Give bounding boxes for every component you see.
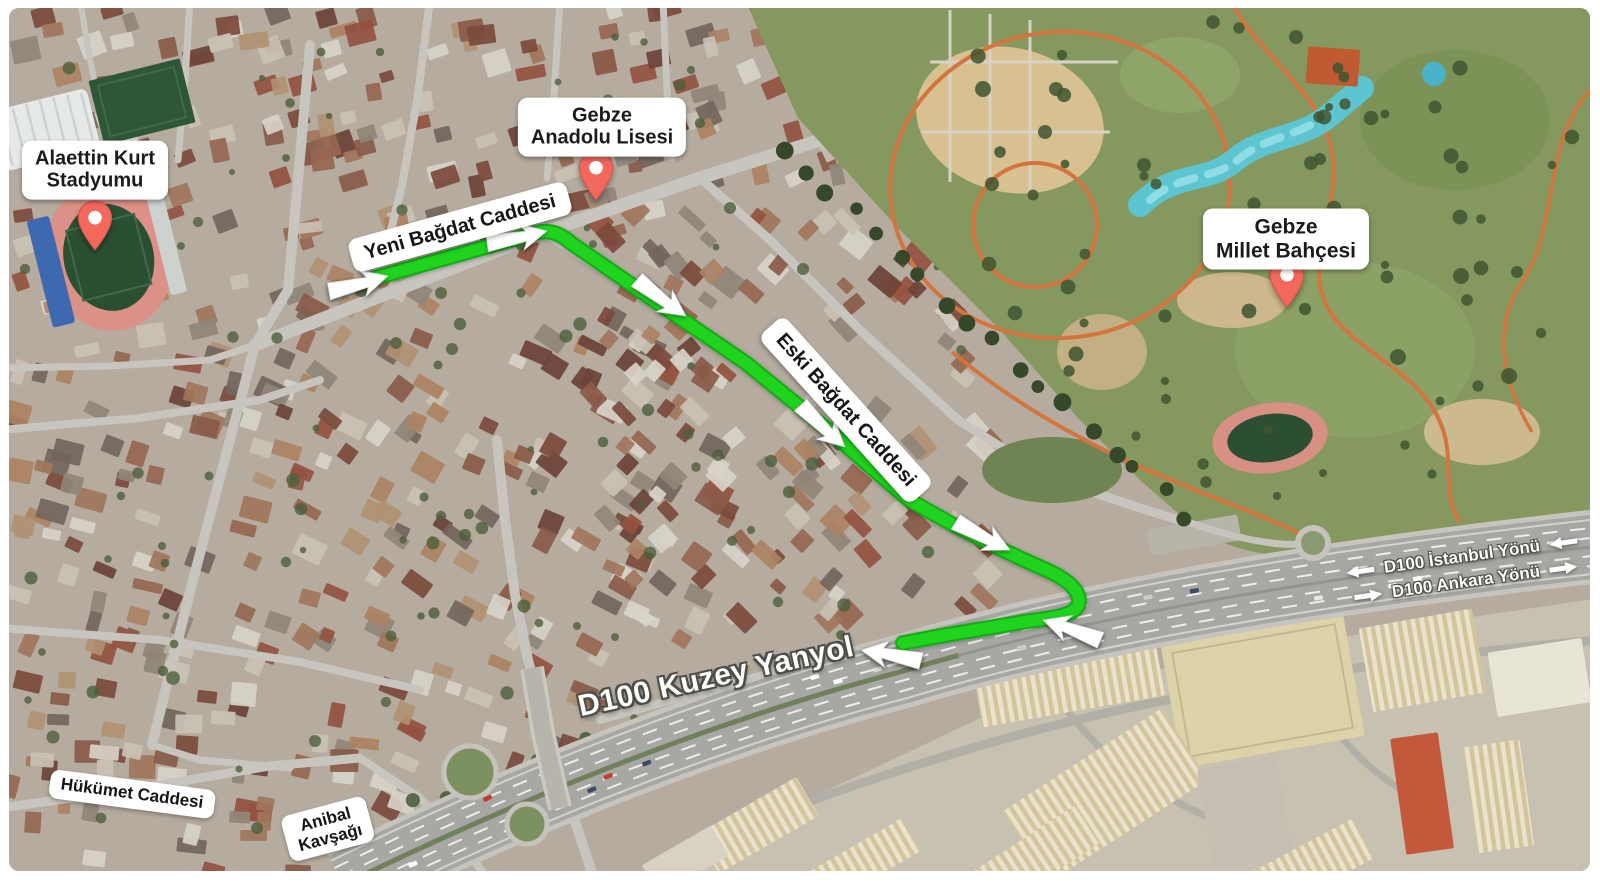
pin-gebze-anadolu-lisesi: [577, 150, 615, 202]
annotated-map-figure: Alaettin Kurt Stadyumu Gebze Anadolu Lis…: [0, 0, 1600, 885]
poi-line: Stadyumu: [47, 170, 144, 192]
label-eski-bagdat-caddesi: Eski Bağdat Caddesi: [758, 315, 934, 506]
arrow-left-icon: [1344, 562, 1376, 580]
label-yeni-bagdat-caddesi: Yeni Bağdat Caddesi: [347, 180, 574, 273]
label-anibal-kavsagi: Anibal Kavşağı: [280, 795, 376, 863]
poi-line: Alaettin Kurt: [35, 148, 155, 170]
arrow-right-icon: [1352, 587, 1384, 605]
label-hukumet-caddesi: Hükümet Caddesi: [48, 769, 216, 819]
poi-line: Anadolu Lisesi: [531, 127, 673, 149]
poi-line: Gebze: [572, 105, 632, 127]
label-gebze-anadolu-lisesi: Gebze Anadolu Lisesi: [518, 98, 686, 157]
arrow-right-icon: [1548, 559, 1580, 577]
label-alaettin-kurt-stadyumu: Alaettin Kurt Stadyumu: [22, 141, 168, 200]
label-gebze-millet-bahcesi: Gebze Millet Bahçesi: [1203, 208, 1369, 269]
annotation-overlay: Alaettin Kurt Stadyumu Gebze Anadolu Lis…: [9, 8, 1590, 871]
arrow-left-icon: [1548, 534, 1580, 552]
pin-alaettin-kurt-stadyumu: [76, 200, 114, 252]
poi-line: Gebze: [1254, 215, 1317, 239]
poi-line: Millet Bahçesi: [1216, 239, 1356, 263]
satellite-map: Alaettin Kurt Stadyumu Gebze Anadolu Lis…: [9, 8, 1590, 871]
label-d100-kuzey-yanyol: D100 Kuzey Yanyol: [575, 630, 857, 724]
